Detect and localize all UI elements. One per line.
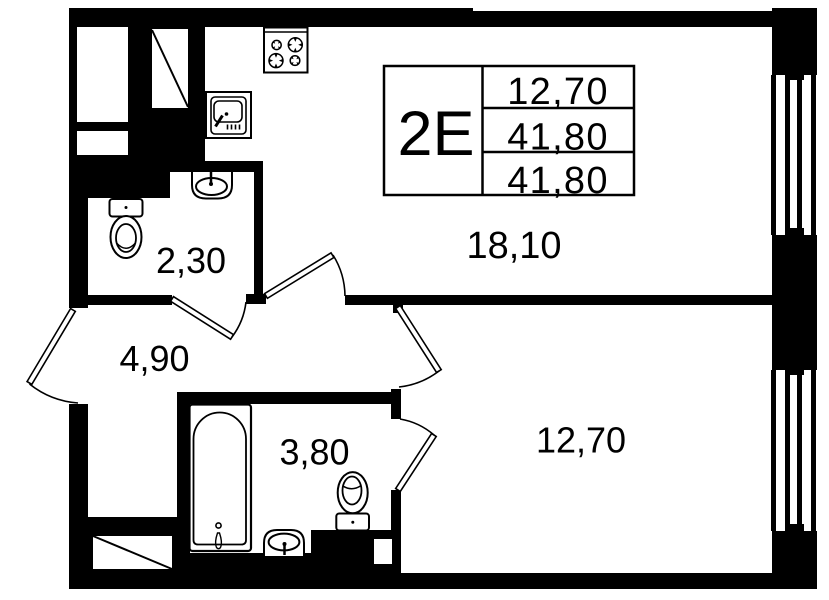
svg-text:41,80: 41,80	[507, 160, 609, 202]
svg-text:2E: 2E	[397, 99, 474, 169]
svg-text:2,30: 2,30	[156, 240, 226, 281]
svg-text:4,90: 4,90	[119, 338, 189, 379]
svg-text:12,70: 12,70	[507, 71, 609, 113]
svg-text:41,80: 41,80	[507, 117, 609, 159]
svg-text:12,70: 12,70	[536, 420, 626, 461]
svg-text:3,80: 3,80	[279, 432, 349, 473]
svg-text:18,10: 18,10	[466, 225, 561, 267]
